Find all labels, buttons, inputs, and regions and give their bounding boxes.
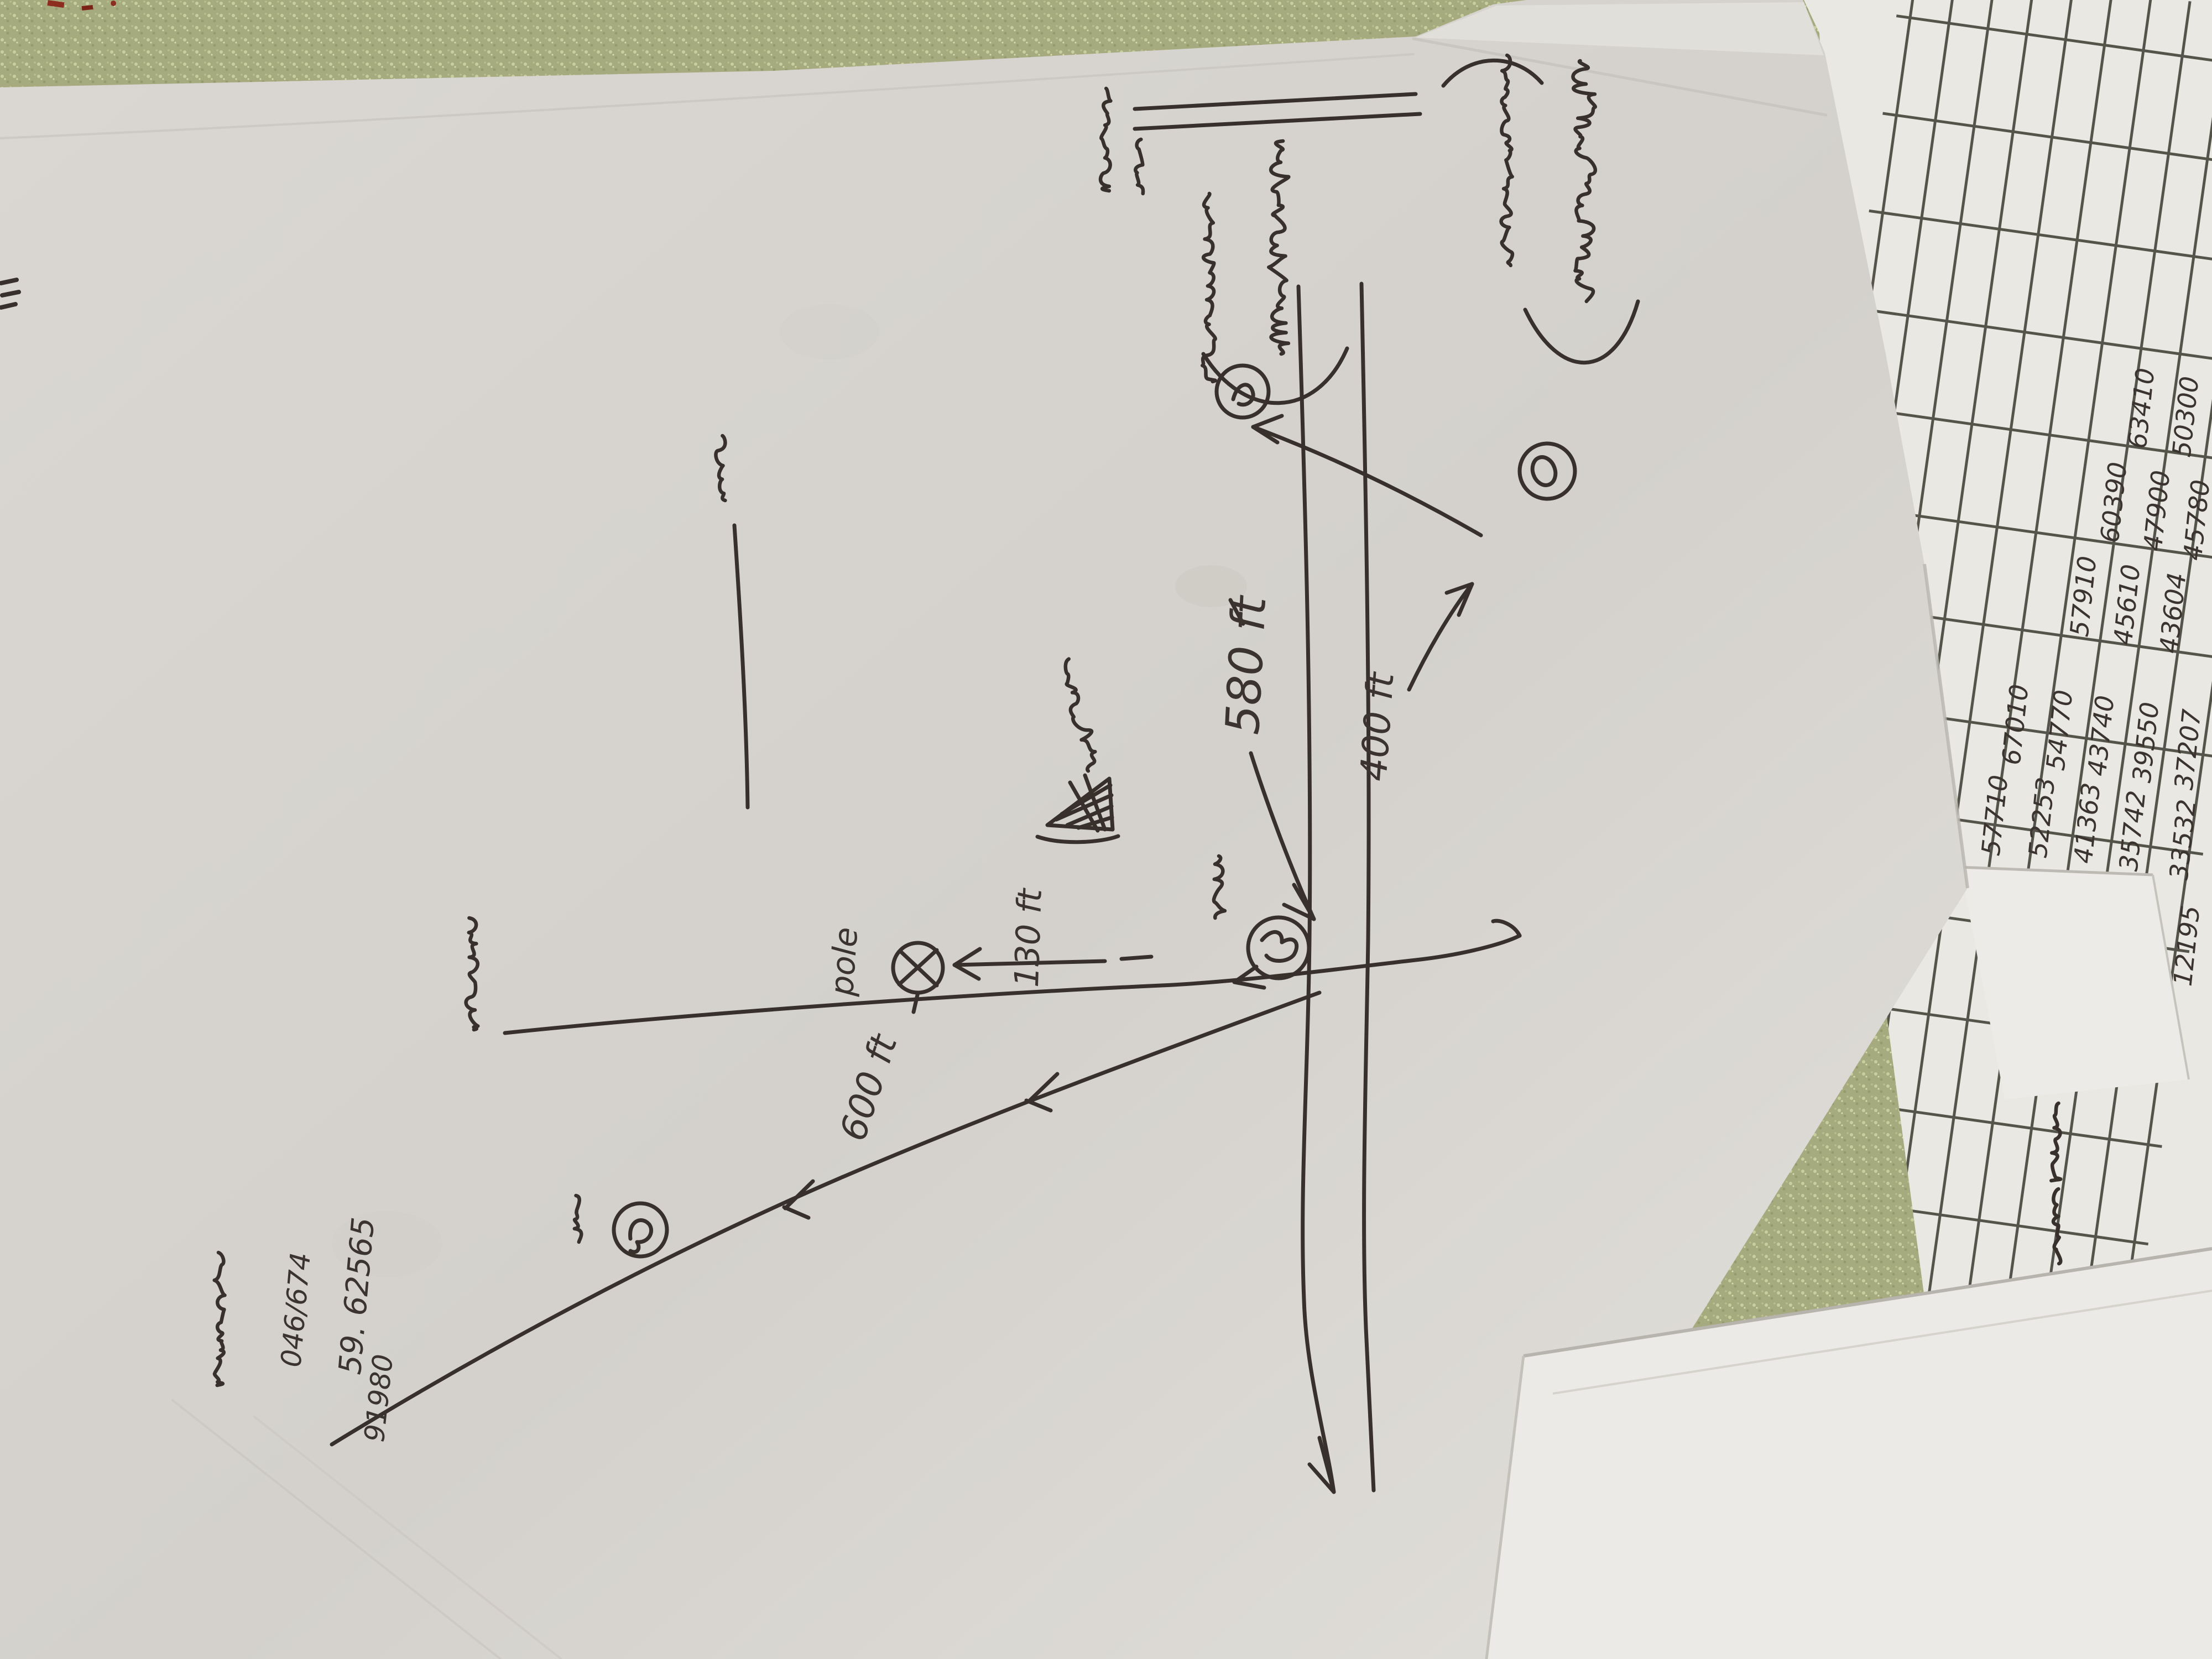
label-pole: pole <box>823 926 865 998</box>
label-580ft: 580 ft <box>1215 593 1277 735</box>
photo-of-hand-drawn-site-sketch: 6341050300603904790045780579104561043604… <box>0 0 2212 1659</box>
label-130ft: 130 ft <box>1008 887 1050 988</box>
label-400ft: 400 ft <box>1352 670 1402 782</box>
paper-stain <box>780 304 879 359</box>
